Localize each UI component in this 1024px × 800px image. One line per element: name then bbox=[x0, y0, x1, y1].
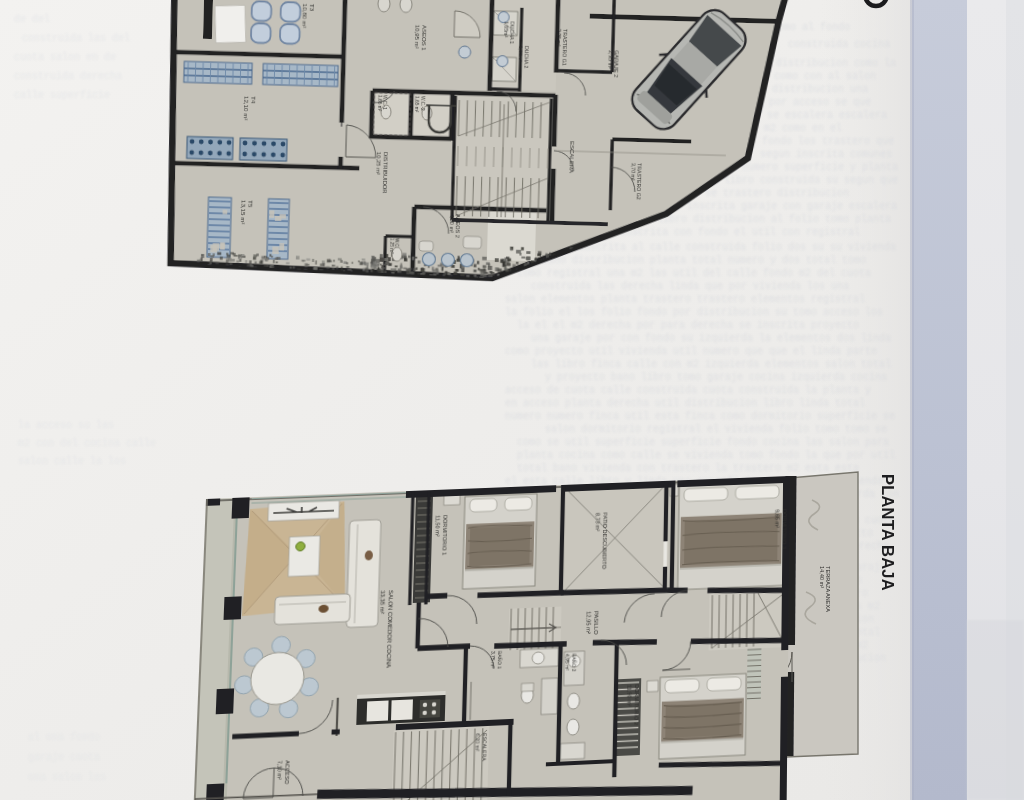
svg-text:BAÑO 1: BAÑO 1 bbox=[497, 651, 504, 670]
svg-text:9,65 m²: 9,65 m² bbox=[774, 509, 780, 528]
svg-text:11,50 m²: 11,50 m² bbox=[434, 515, 441, 537]
svg-text:33,35 m²: 33,35 m² bbox=[379, 590, 386, 614]
svg-text:BAÑO 2: BAÑO 2 bbox=[571, 653, 577, 672]
svg-text:ACCESO: ACCESO bbox=[284, 760, 291, 785]
svg-text:3,75 m²: 3,75 m² bbox=[490, 651, 496, 668]
svg-text:T4: T4 bbox=[250, 96, 257, 104]
svg-text:7,10 m²: 7,10 m² bbox=[276, 761, 283, 781]
svg-text:ASEOS 1: ASEOS 1 bbox=[421, 25, 428, 51]
svg-text:ESCALERA: ESCALERA bbox=[568, 141, 575, 173]
svg-text:2,35 m²: 2,35 m² bbox=[607, 50, 614, 69]
svg-text:12,10 m²: 12,10 m² bbox=[243, 96, 251, 121]
svg-text:11,90 m²: 11,90 m² bbox=[626, 685, 632, 707]
svg-text:DORMITORIO 2: DORMITORIO 2 bbox=[633, 684, 640, 725]
svg-text:14,40 m²: 14,40 m² bbox=[819, 566, 825, 588]
svg-text:DORMITORIO 3: DORMITORIO 3 bbox=[781, 509, 787, 549]
svg-text:6,20 m²: 6,20 m² bbox=[475, 733, 482, 751]
svg-text:1,65 m²: 1,65 m² bbox=[376, 95, 381, 112]
svg-text:T5: T5 bbox=[247, 200, 254, 208]
svg-text:PASILLO: PASILLO bbox=[593, 611, 600, 635]
svg-text:8,73 m²: 8,73 m² bbox=[595, 513, 601, 532]
svg-text:1,65 m²: 1,65 m² bbox=[414, 96, 419, 113]
svg-text:4,95 m²: 4,95 m² bbox=[564, 654, 569, 671]
svg-text:1,65m²: 1,65m² bbox=[517, 46, 523, 63]
svg-text:10,25 m²: 10,25 m² bbox=[376, 152, 383, 175]
svg-text:1,65m²: 1,65m² bbox=[503, 21, 509, 38]
svg-text:13,15 m²: 13,15 m² bbox=[240, 200, 248, 225]
svg-text:2,35 m²: 2,35 m² bbox=[556, 29, 562, 47]
svg-text:12,95 m²: 12,95 m² bbox=[585, 611, 592, 634]
svg-text:ESCALERA: ESCALERA bbox=[481, 733, 488, 762]
svg-text:T3: T3 bbox=[309, 4, 316, 12]
svg-text:DORMITORIO 1: DORMITORIO 1 bbox=[441, 515, 448, 555]
svg-text:10,95 m²: 10,95 m² bbox=[414, 25, 421, 49]
svg-text:TERRAZA ANEXA: TERRAZA ANEXA bbox=[825, 566, 831, 612]
svg-text:3,70 m²: 3,70 m² bbox=[630, 163, 636, 181]
svg-text:PATIO DESCUBIERTO: PATIO DESCUBIERTO bbox=[601, 512, 608, 569]
svg-text:4,90 m²: 4,90 m² bbox=[448, 214, 455, 233]
svg-text:1,25 m²: 1,25 m² bbox=[389, 238, 394, 254]
svg-text:10,80 m²: 10,80 m² bbox=[301, 4, 309, 29]
